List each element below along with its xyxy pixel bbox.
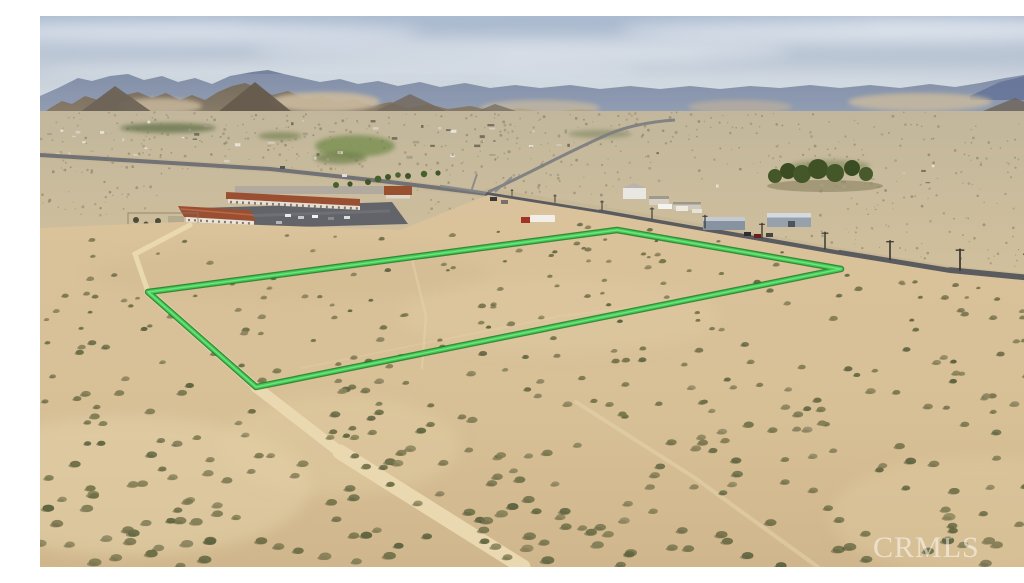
- car: [766, 233, 773, 237]
- car: [342, 174, 347, 177]
- car: [490, 197, 497, 201]
- semi-trailer: [530, 215, 555, 222]
- motel-rear-drive: [235, 186, 385, 194]
- small-red-roof-building: [384, 186, 412, 199]
- car: [280, 166, 285, 169]
- aerial-photo-canvas: [40, 16, 1024, 567]
- aerial-photo: CRMLS: [40, 16, 1024, 567]
- truck-cab: [521, 217, 530, 223]
- car: [744, 232, 751, 236]
- car: [754, 234, 761, 238]
- car: [501, 200, 508, 204]
